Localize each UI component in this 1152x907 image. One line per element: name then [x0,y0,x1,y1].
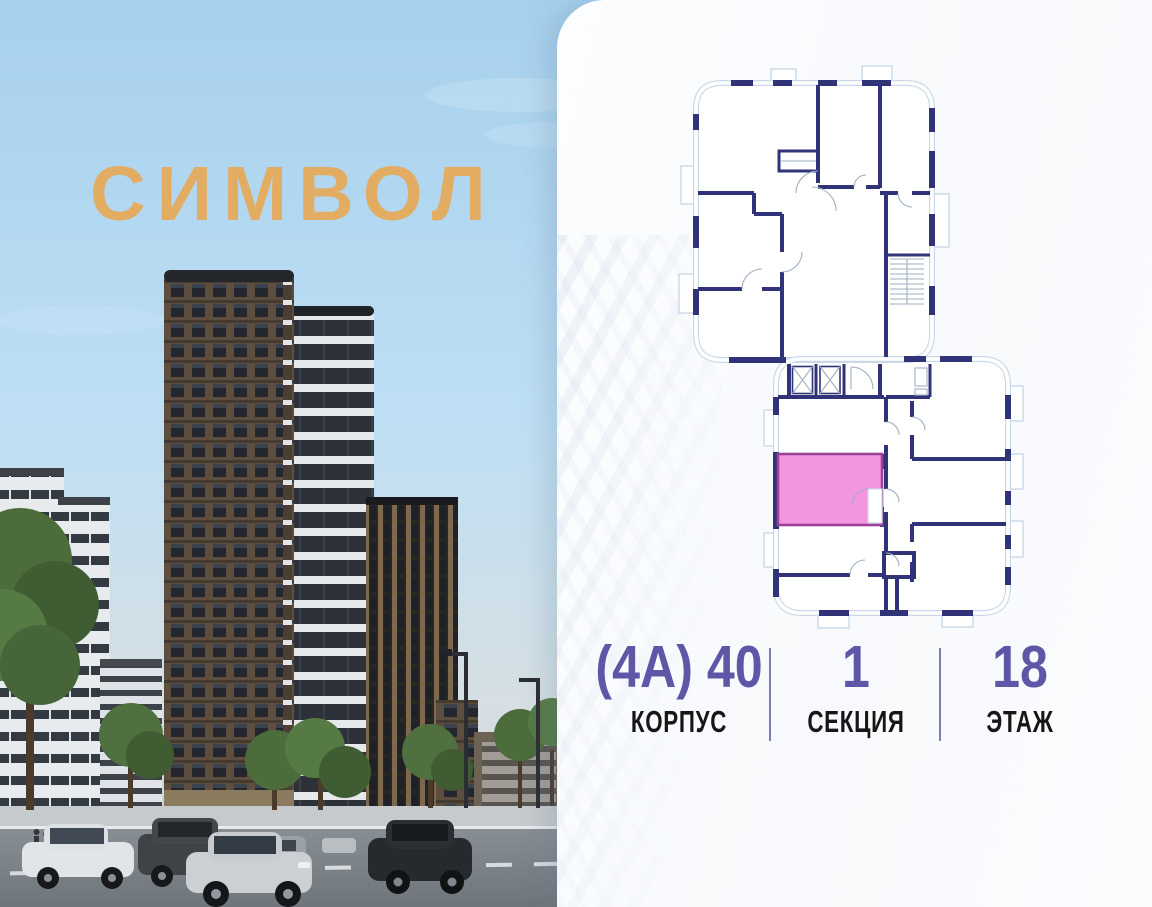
unit-info: (4А) 40 КОРПУС 1 СЕКЦИЯ 18 ЭТАЖ [557,636,1152,756]
screenshot-root: СИМВОЛ [0,0,1152,907]
street-photo [0,0,640,907]
building-number: (4А) 40 [586,636,773,698]
floor-label: ЭТАЖ [941,704,1099,740]
selected-apartment[interactable] [778,454,882,525]
building-label: КОРПУС [600,704,758,740]
unit-info-floor: 18 ЭТАЖ [910,636,1130,740]
floor-number: 18 [927,636,1114,698]
project-logo: СИМВОЛ [90,150,490,239]
floor-plan [676,52,1040,652]
